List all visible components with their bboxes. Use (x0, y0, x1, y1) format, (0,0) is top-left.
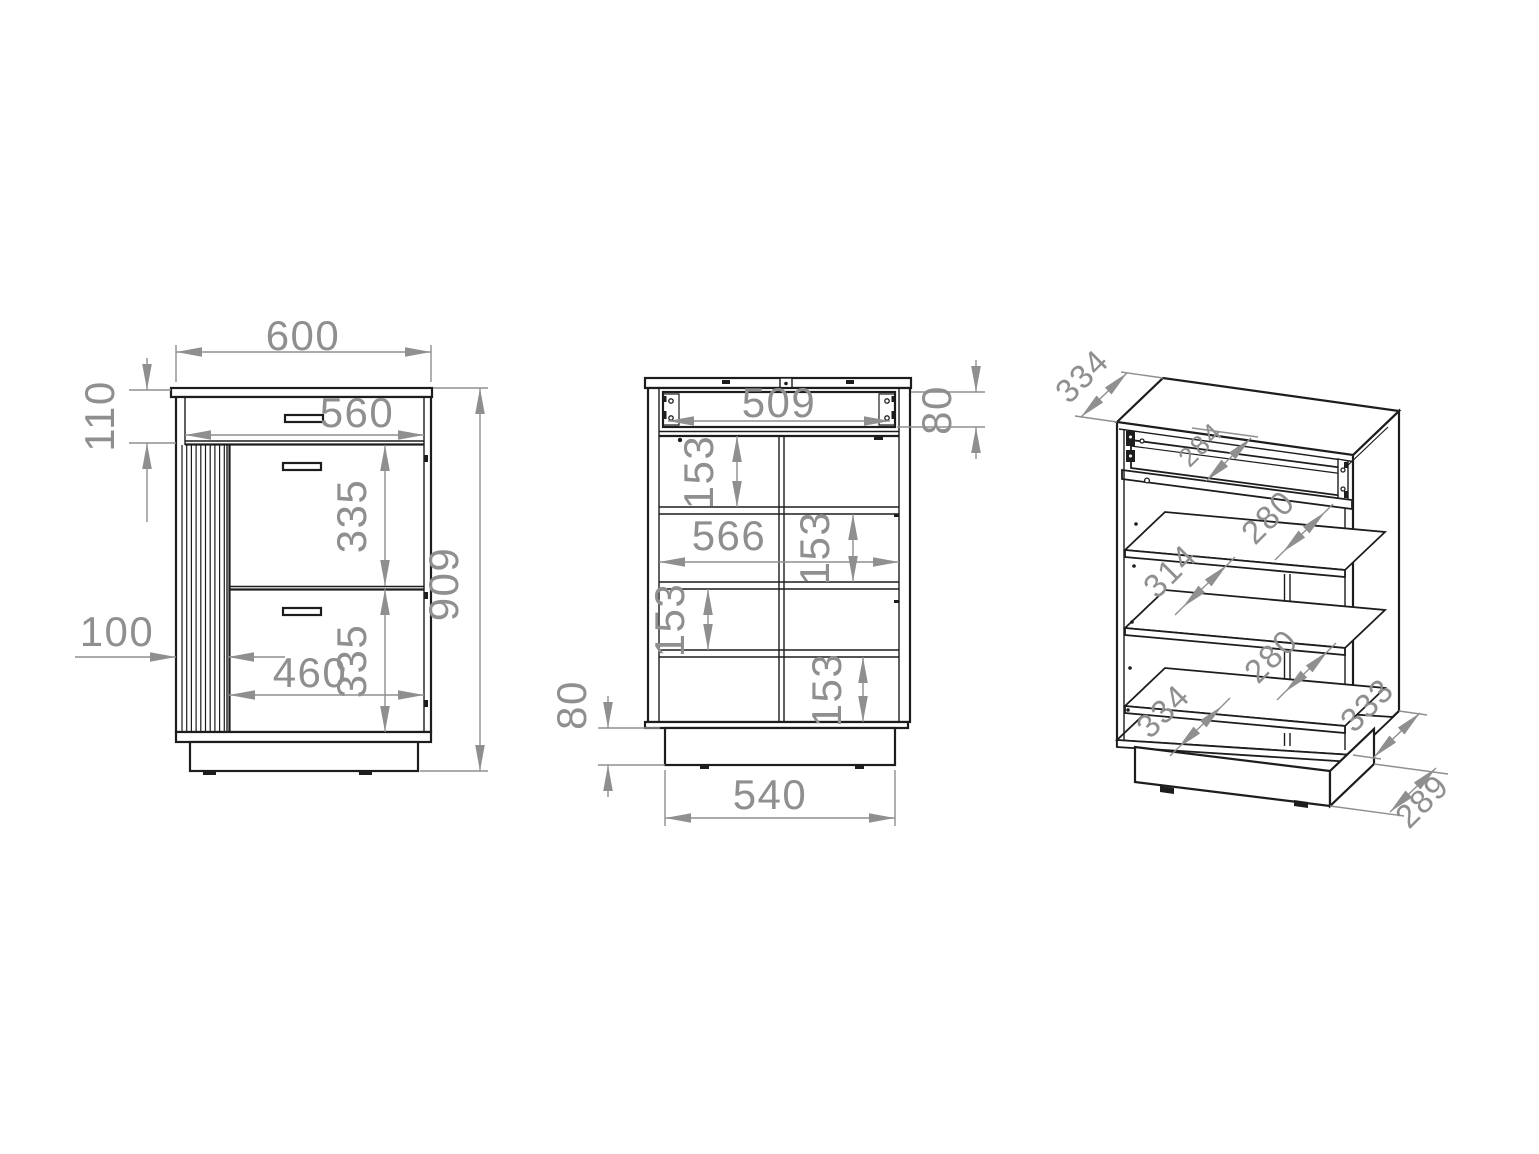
dim-plinth-width: 540 (665, 770, 895, 826)
dim-label-80-drawer: 80 (913, 385, 960, 435)
isometric-view: 334 284 280 314 280 33 (1048, 342, 1456, 835)
front-plinth (190, 742, 418, 771)
front-cabinet-outline (171, 388, 432, 775)
dim-label-566: 566 (692, 512, 767, 559)
internal-front-view: 509 80 153 153 566 153 153 (548, 360, 985, 826)
upper-front-handle (283, 463, 321, 470)
dim-label-334-top: 334 (1048, 342, 1116, 410)
dim-label-600: 600 (266, 312, 341, 359)
dim-label-110: 110 (76, 380, 123, 451)
dim-label-289: 289 (1388, 767, 1456, 835)
front-foot (359, 771, 372, 775)
dim-label-153-4: 153 (803, 653, 850, 728)
front-foot (203, 771, 216, 775)
lower-front-handle (283, 608, 321, 615)
front-bottom-board (176, 732, 431, 742)
dim-label-335-upper: 335 (328, 479, 375, 554)
dim-label-80-plinth: 80 (548, 680, 595, 730)
dim-label-153-3: 153 (646, 583, 693, 658)
dim-label-509: 509 (742, 379, 817, 426)
internal-foot (700, 765, 709, 769)
front-view: 600 110 560 335 335 909 (75, 312, 488, 775)
dim-label-540: 540 (733, 771, 808, 818)
internal-plinth (665, 728, 895, 765)
dim-top-drawer-height: 110 (76, 358, 176, 522)
drawer-handle (285, 415, 323, 422)
furniture-dimension-drawing: 600 110 560 335 335 909 (0, 0, 1539, 1154)
dim-label-909: 909 (420, 547, 467, 622)
dim-overall-width: 600 (176, 312, 431, 382)
internal-foot (855, 765, 864, 769)
dim-label-153-2: 153 (791, 511, 838, 586)
dim-label-560: 560 (320, 389, 395, 436)
dim-label-460: 460 (273, 649, 348, 696)
dim-label-153-1: 153 (675, 435, 722, 510)
dim-label-100: 100 (80, 608, 155, 655)
